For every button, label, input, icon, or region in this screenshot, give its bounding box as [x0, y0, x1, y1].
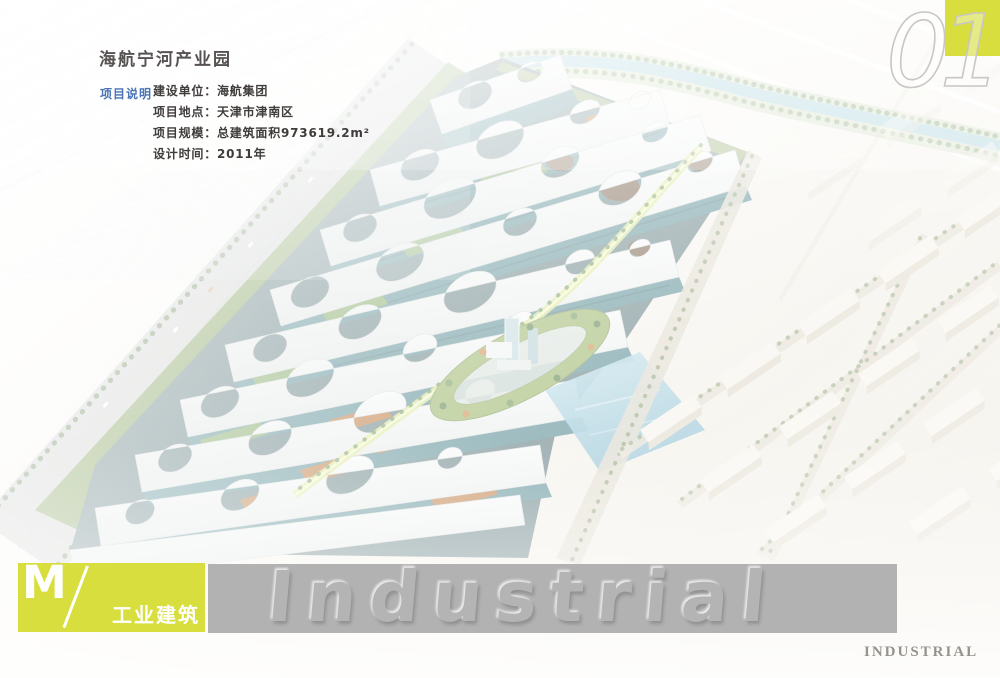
page-title: 海航宁河产业园	[99, 45, 232, 70]
category-label: 工业建筑	[112, 599, 200, 628]
industrial-corner-label: INDUSTRIAL	[864, 644, 978, 661]
watermark-band: Industrial	[208, 564, 897, 633]
detail-scale: 项目规模：总建筑面积973619.2m²	[153, 127, 370, 139]
portfolio-page: 海航宁河产业园 项目说明 建设单位：海航集团 项目地点：天津市津南区 项目规模：…	[0, 0, 1000, 678]
detail-design-year: 设计时间：2011年	[153, 148, 370, 160]
project-description-label: 项目说明	[100, 85, 152, 102]
category-logo-box: M 工业建筑	[18, 563, 205, 632]
detail-location: 项目地点：天津市津南区	[153, 106, 370, 118]
watermark-text: Industrial	[265, 564, 781, 630]
page-number: 01	[886, 0, 993, 105]
project-details: 建设单位：海航集团 项目地点：天津市津南区 项目规模：总建筑面积973619.2…	[153, 85, 370, 169]
logo-letter: M	[22, 556, 67, 609]
page-number-emblem: 01	[846, 0, 1000, 105]
detail-construction-unit: 建设单位：海航集团	[153, 85, 370, 97]
